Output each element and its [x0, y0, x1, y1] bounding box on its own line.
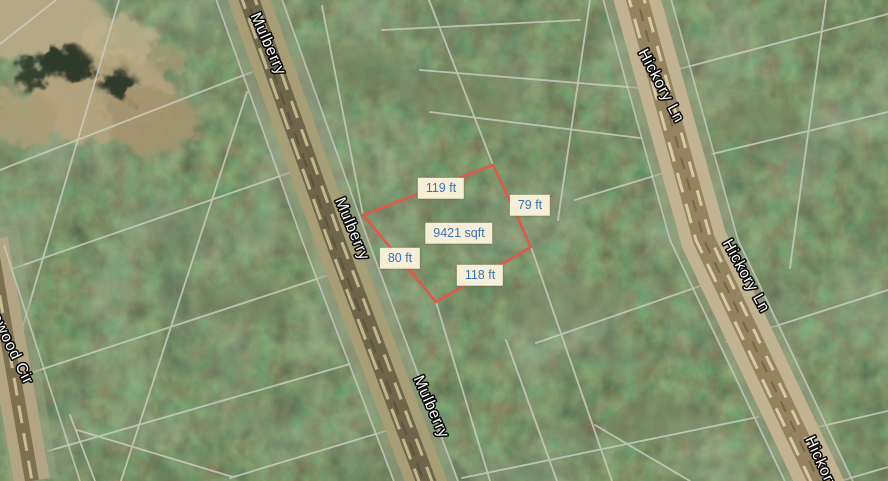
parcel-side-sw-label: 80 ft	[380, 248, 420, 269]
parcel-area-label: 9421 sqft	[425, 223, 492, 244]
parcel-side-se-label: 118 ft	[457, 265, 503, 286]
satellite-map-canvas[interactable]: Mulberry Mulberry Mulberry Hickory Ln Hi…	[0, 0, 888, 481]
parcel-side-nw-label: 119 ft	[418, 178, 464, 199]
parcel-side-ne-label: 79 ft	[510, 195, 550, 216]
